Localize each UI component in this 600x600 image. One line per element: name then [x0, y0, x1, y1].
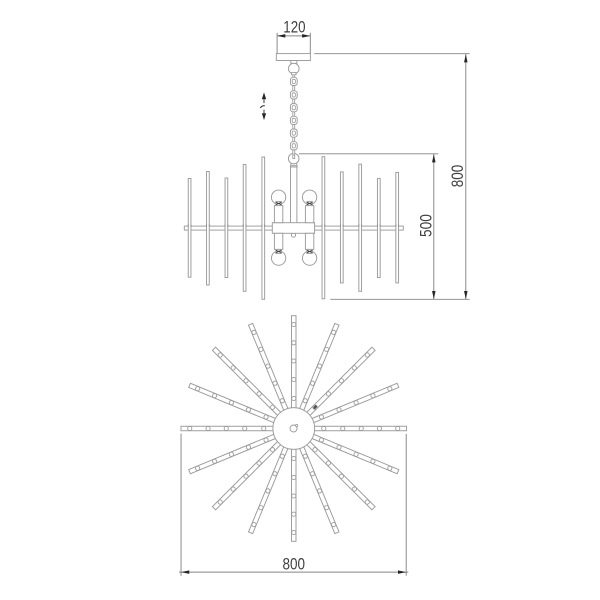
svg-text:800: 800 — [283, 554, 306, 573]
svg-text:500: 500 — [416, 214, 435, 237]
svg-text:120: 120 — [283, 19, 305, 37]
svg-text:800: 800 — [448, 165, 467, 188]
